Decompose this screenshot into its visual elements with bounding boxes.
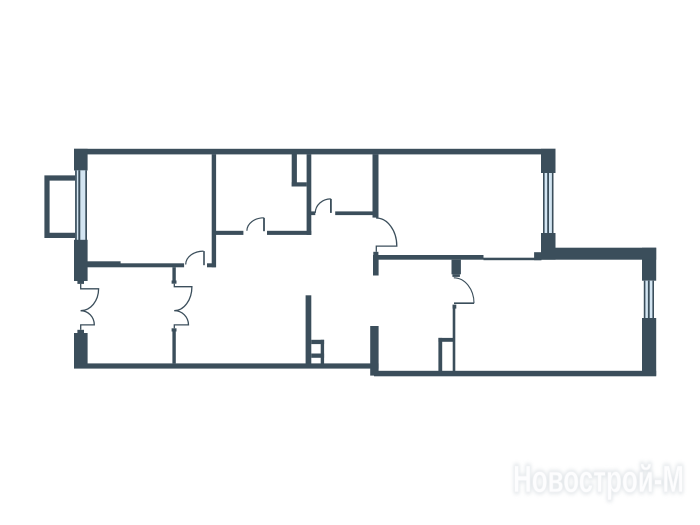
svg-text:Новострой-М: Новострой-М (513, 458, 684, 500)
